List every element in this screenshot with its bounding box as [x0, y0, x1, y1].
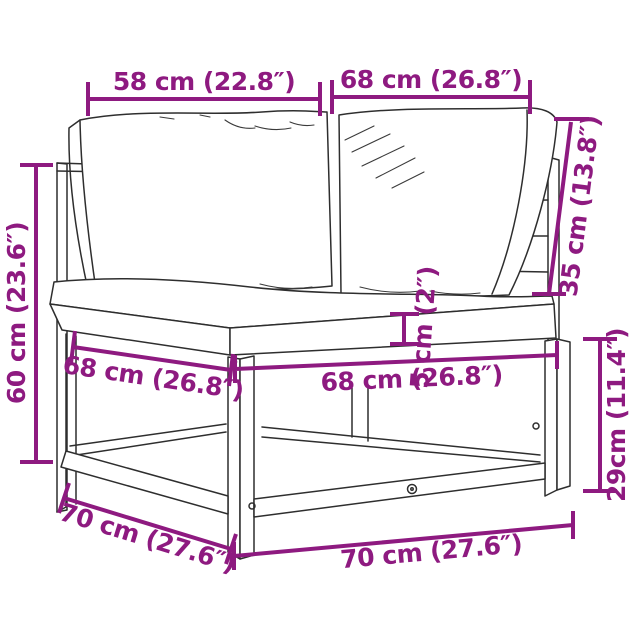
diagram-canvas: 58 cm (22.8″) 68 cm (26.8″) 35 cm (13.8″…	[0, 0, 640, 640]
dimension-label: 70 cm (27.6″)	[339, 529, 523, 574]
dimension-base-height: 29cm (11.4″)	[583, 328, 631, 502]
dimension-backrest-width-right: 68 cm (26.8″)	[332, 65, 530, 114]
dimension-overall-height: 60 cm (23.6″)	[2, 165, 53, 462]
right-back-cushion	[339, 108, 557, 297]
dimension-label: 58 cm (22.8″)	[113, 67, 295, 96]
screw-hole	[533, 423, 539, 429]
dimension-label: 29cm (11.4″)	[602, 328, 631, 502]
dimension-label: 60 cm (23.6″)	[2, 222, 31, 404]
dimension-backrest-width-left: 58 cm (22.8″)	[88, 67, 320, 116]
base-bottom-rails	[61, 451, 545, 517]
product-dimension-diagram: 58 cm (22.8″) 68 cm (26.8″) 35 cm (13.8″…	[0, 0, 640, 640]
dimension-label: 68 cm (26.8″)	[340, 65, 522, 94]
dimension-base-width-front: 70 cm (27.6″)	[234, 511, 573, 574]
left-back-cushion	[69, 111, 332, 290]
